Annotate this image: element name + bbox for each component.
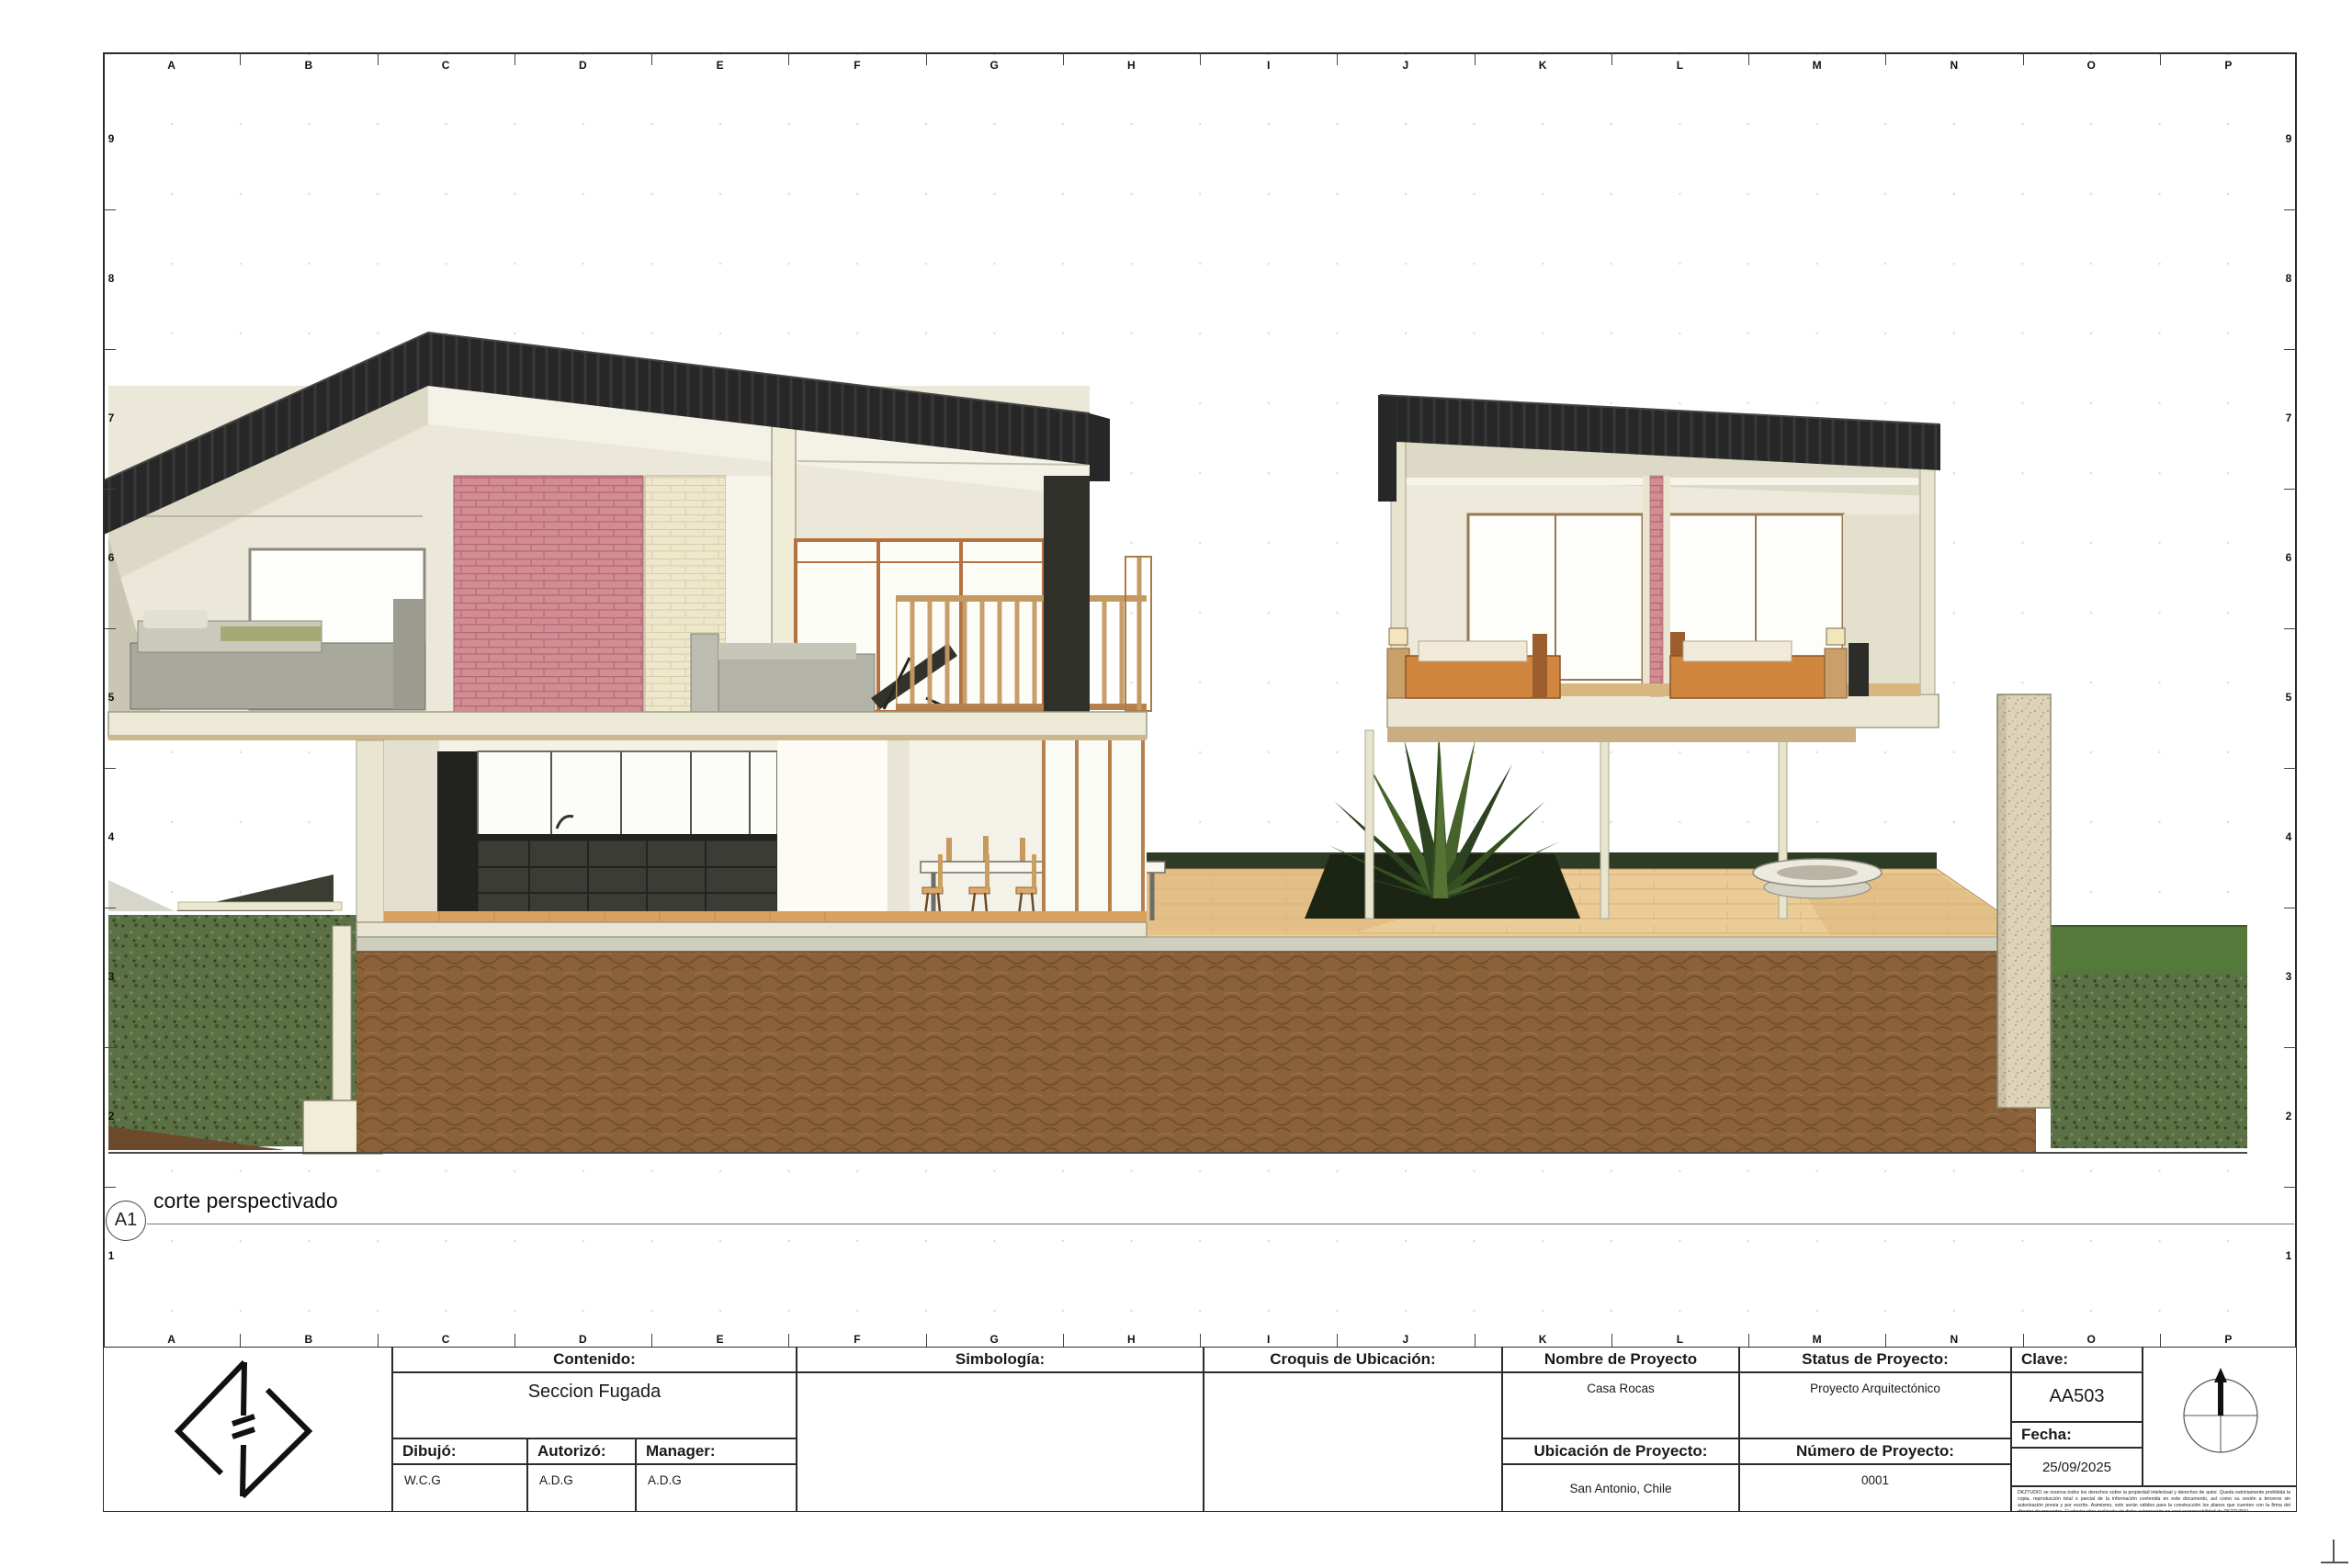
grid-column-label: M xyxy=(1813,1333,1822,1346)
grid-tick xyxy=(2023,1334,2024,1347)
grid-row-label: 5 xyxy=(108,691,115,704)
grid-column-label: A xyxy=(167,1333,175,1346)
view-tag-bubble: A1 xyxy=(106,1201,146,1241)
grid-row-label: 3 xyxy=(2286,970,2292,983)
grid-tick xyxy=(1063,1334,1064,1347)
grid-column-label: I xyxy=(1267,59,1270,72)
grid-tick xyxy=(2284,209,2297,210)
grid-column-label: P xyxy=(2224,1333,2232,1346)
grid-column-label: O xyxy=(2086,59,2095,72)
corner-crop-mark xyxy=(2321,1562,2348,1563)
clave-label: Clave: xyxy=(2011,1347,2143,1372)
contenido-value: Seccion Fugada xyxy=(392,1372,797,1438)
grid-tick xyxy=(240,1334,241,1347)
grid-row-label: 7 xyxy=(2286,412,2292,424)
grid-row-label: 8 xyxy=(2286,272,2292,285)
fire-pit xyxy=(1753,859,1882,898)
manager-label: Manager: xyxy=(636,1438,797,1464)
grid-tick xyxy=(103,349,116,350)
grid-column-label: A xyxy=(167,59,175,72)
grid-row-label: 1 xyxy=(2286,1249,2292,1262)
grid-tick xyxy=(1200,1334,1201,1347)
grid-row-label: 6 xyxy=(108,551,115,564)
croquis-label: Croquis de Ubicación: xyxy=(1204,1347,1502,1372)
grid-tick xyxy=(788,52,789,65)
grid-tick xyxy=(1475,1334,1476,1347)
simbologia-area xyxy=(797,1372,1204,1512)
grid-tick xyxy=(2284,628,2297,629)
numero-label: Número de Proyecto: xyxy=(1739,1438,2011,1464)
grid-tick xyxy=(514,1334,515,1347)
status-label: Status de Proyecto: xyxy=(1739,1347,2011,1372)
grid-row-label: 6 xyxy=(2286,551,2292,564)
grid-tick xyxy=(1748,52,1749,65)
manager-value: A.D.G xyxy=(636,1464,797,1512)
grid-column-label: E xyxy=(717,1333,724,1346)
grid-column-label: L xyxy=(1677,59,1683,72)
grid-column-label: D xyxy=(579,59,587,72)
grid-row-label: 5 xyxy=(2286,691,2292,704)
left-house-section xyxy=(105,333,1165,937)
contenido-label: Contenido: xyxy=(392,1347,797,1372)
grid-tick xyxy=(2160,52,2161,65)
dibujo-label: Dibujó: xyxy=(392,1438,527,1464)
grid-tick xyxy=(926,52,927,65)
grid-tick xyxy=(103,1187,116,1188)
grid-column-label: C xyxy=(442,59,450,72)
grid-column-label: E xyxy=(717,59,724,72)
ubicacion-label: Ubicación de Proyecto: xyxy=(1502,1438,1739,1464)
grid-column-label: K xyxy=(1539,1333,1547,1346)
grid-row-label: 9 xyxy=(2286,132,2292,145)
grid-row-label: 4 xyxy=(108,830,115,843)
grid-tick xyxy=(103,628,116,629)
view-title-line xyxy=(147,1224,2294,1224)
grid-column-label: C xyxy=(442,1333,450,1346)
grid-tick xyxy=(103,209,116,210)
grid-tick xyxy=(378,52,379,65)
grid-column-label: B xyxy=(305,1333,313,1346)
grid-column-label: I xyxy=(1267,1333,1270,1346)
grid-tick xyxy=(2284,349,2297,350)
grid-column-label: F xyxy=(854,1333,860,1346)
corner-crop-mark xyxy=(2333,1540,2335,1563)
clave-value: AA503 xyxy=(2011,1372,2143,1422)
grid-tick xyxy=(240,52,241,65)
grid-column-label: O xyxy=(2086,1333,2095,1346)
grid-column-label: P xyxy=(2224,59,2232,72)
numero-value: 0001 xyxy=(1739,1464,2011,1512)
nombre-label: Nombre de Proyecto xyxy=(1502,1347,1739,1372)
grid-row-label: 2 xyxy=(108,1110,115,1122)
grid-tick xyxy=(788,1334,789,1347)
grid-row-label: 2 xyxy=(2286,1110,2292,1122)
grid-column-label: L xyxy=(1677,1333,1683,1346)
grid-tick xyxy=(1063,52,1064,65)
right-house-section xyxy=(1378,395,1940,742)
grid-column-label: D xyxy=(579,1333,587,1346)
grid-tick xyxy=(103,489,116,490)
grid-tick xyxy=(1475,52,1476,65)
grid-column-label: B xyxy=(305,59,313,72)
copyright-disclaimer: DKZTUDIO se reserva todos los derechos s… xyxy=(2011,1486,2297,1512)
north-arrow-icon xyxy=(2143,1348,2296,1485)
house-section-illustration xyxy=(105,54,2295,1345)
grid-tick xyxy=(1885,1334,1886,1347)
grid-column-label: M xyxy=(1813,59,1822,72)
nombre-value: Casa Rocas xyxy=(1502,1372,1739,1438)
grid-tick xyxy=(103,1047,116,1048)
grid-row-label: 1 xyxy=(108,1249,115,1262)
view-title: corte perspectivado xyxy=(153,1189,338,1213)
grid-tick xyxy=(1337,1334,1338,1347)
status-value: Proyecto Arquitectónico xyxy=(1739,1372,2011,1438)
grid-tick xyxy=(103,768,116,769)
grid-column-label: J xyxy=(1403,59,1409,72)
croquis-area xyxy=(1204,1372,1502,1512)
fecha-value: 25/09/2025 xyxy=(2011,1448,2143,1486)
grid-column-label: H xyxy=(1127,1333,1136,1346)
studio-logo-icon xyxy=(104,1348,391,1511)
grid-tick xyxy=(378,1334,379,1347)
grid-row-label: 8 xyxy=(108,272,115,285)
north-arrow-compass xyxy=(2143,1347,2297,1486)
ubicacion-value: San Antonio, Chile xyxy=(1502,1464,1739,1512)
grid-tick xyxy=(103,908,116,908)
grid-tick xyxy=(1200,52,1201,65)
grid-column-label: F xyxy=(854,59,860,72)
grid-row-label: 7 xyxy=(108,412,115,424)
grid-tick xyxy=(651,1334,652,1347)
fecha-label: Fecha: xyxy=(2011,1422,2143,1448)
grid-tick xyxy=(1611,1334,1612,1347)
grid-tick xyxy=(514,52,515,65)
autorizo-label: Autorizó: xyxy=(527,1438,636,1464)
grid-tick xyxy=(1885,52,1886,65)
grid-column-label: N xyxy=(1951,1333,1959,1346)
dibujo-value: W.C.G xyxy=(392,1464,527,1512)
grid-row-label: 9 xyxy=(108,132,115,145)
grid-tick xyxy=(1611,52,1612,65)
drawing-area xyxy=(105,54,2295,1345)
grid-column-label: J xyxy=(1403,1333,1409,1346)
grid-row-label: 3 xyxy=(108,970,115,983)
sheet: AABBCCDDEEFFGGHHIIJJKKLLMMNNOOPP99887766… xyxy=(0,0,2352,1568)
grid-column-label: K xyxy=(1539,59,1547,72)
grid-tick xyxy=(2023,52,2024,65)
grid-tick xyxy=(2284,768,2297,769)
autorizo-value: A.D.G xyxy=(527,1464,636,1512)
grid-tick xyxy=(651,52,652,65)
grid-tick xyxy=(926,1334,927,1347)
grid-tick xyxy=(2284,1047,2297,1048)
grid-tick xyxy=(2284,1187,2297,1188)
grid-row-label: 4 xyxy=(2286,830,2292,843)
grid-tick xyxy=(1748,1334,1749,1347)
grid-tick xyxy=(2160,1334,2161,1347)
grid-column-label: G xyxy=(989,59,998,72)
grid-column-label: N xyxy=(1951,59,1959,72)
grid-column-label: H xyxy=(1127,59,1136,72)
grid-tick xyxy=(2284,908,2297,908)
simbologia-label: Simbología: xyxy=(797,1347,1204,1372)
grid-tick xyxy=(2284,489,2297,490)
grid-tick xyxy=(1337,52,1338,65)
grid-column-label: G xyxy=(989,1333,998,1346)
